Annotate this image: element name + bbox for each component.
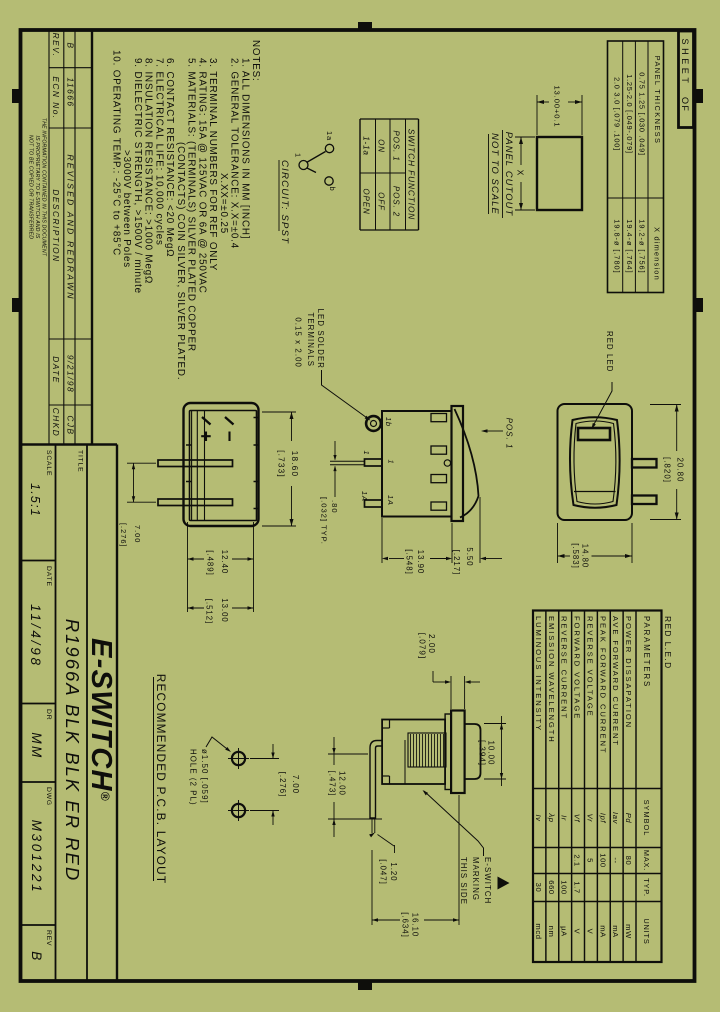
svg-text:2.1: 2.1 [573, 854, 582, 866]
svg-text:mA: mA [611, 925, 620, 938]
svg-text:9. DIELECTRIC STRENGTH, >1500V: 9. DIELECTRIC STRENGTH, >1500V / minute [132, 58, 143, 294]
svg-text:PEAK FORWARD CURRENT: PEAK FORWARD CURRENT [598, 616, 607, 754]
svg-text:mW: mW [624, 924, 633, 939]
svg-text:REV: REV [45, 930, 52, 946]
svg-text:0.15 x 2.00: 0.15 x 2.00 [294, 317, 303, 368]
svg-text:1.25-2.0 [.049-.079]: 1.25-2.0 [.049-.079] [625, 74, 634, 154]
svg-text:FORWARD VOLTAGE: FORWARD VOLTAGE [573, 616, 582, 720]
svg-text:9/21/98: 9/21/98 [66, 355, 76, 393]
svg-text:POS. 2: POS. 2 [392, 186, 401, 217]
svg-text:(CONTACTS) COIN SILVER, SILVER: (CONTACTS) COIN SILVER, SILVER PLATED. [175, 142, 186, 380]
svg-text:OPEN: OPEN [362, 188, 371, 214]
svg-text:[.079]: [.079] [418, 633, 427, 660]
svg-text:1: 1 [387, 460, 396, 465]
svg-text:CJB: CJB [66, 415, 76, 435]
svg-text:PANEL CUTOUT: PANEL CUTOUT [504, 132, 514, 217]
svg-text:µA: µA [560, 926, 569, 937]
svg-text:OFF: OFF [377, 192, 386, 211]
svg-text:18.60: 18.60 [290, 451, 299, 478]
svg-text:MARKING: MARKING [471, 857, 480, 901]
svg-text:NOTES:: NOTES: [250, 40, 261, 82]
svg-text:5. MATERIALS: (TERMINALS) SILV: 5. MATERIALS: (TERMINALS) SILVER PLATED … [186, 58, 197, 352]
svg-text:REV.: REV. [51, 33, 61, 58]
svg-text:1A: 1A [360, 491, 369, 502]
svg-text:11666: 11666 [66, 78, 76, 108]
svg-text:4. RATING: 15A @ 125VAC OR 6A: 4. RATING: 15A @ 125VAC OR 6A @ 250VAC [196, 58, 207, 294]
svg-text:DATE: DATE [45, 566, 52, 587]
svg-text:19.4-ø [.764]: 19.4-ø [.764] [625, 219, 634, 273]
svg-text:30: 30 [534, 883, 543, 893]
svg-text:1-1a: 1-1a [362, 136, 371, 156]
svg-text:NOT TO SCALE: NOT TO SCALE [490, 133, 500, 215]
svg-text:13.00+0.1: 13.00+0.1 [553, 85, 562, 127]
svg-text:B: B [66, 42, 76, 49]
svg-text:ECN No.: ECN No. [51, 76, 61, 119]
svg-text:2.00: 2.00 [427, 634, 436, 654]
svg-text:13.00: 13.00 [220, 598, 229, 623]
svg-text:19.8-ø [.780]: 19.8-ø [.780] [613, 219, 622, 273]
svg-text:Iav: Iav [611, 812, 620, 825]
svg-text:--: -- [611, 857, 620, 863]
svg-text:EMISSION WAVELENGTH: EMISSION WAVELENGTH [547, 616, 556, 744]
svg-text:TITLE: TITLE [77, 450, 84, 473]
svg-text:RED L.E.D: RED L.E.D [663, 616, 673, 670]
svg-text:DR: DR [45, 709, 52, 720]
svg-text:[.820]: [.820] [663, 457, 672, 483]
svg-text:LED SOLDER: LED SOLDER [316, 309, 325, 369]
svg-text:100: 100 [560, 880, 569, 894]
svg-text:B: B [29, 951, 44, 962]
svg-text:1.7: 1.7 [573, 881, 582, 893]
svg-text:R1966A BLK BLK ER RED: R1966A BLK BLK ER RED [62, 619, 83, 882]
svg-text:80: 80 [624, 856, 633, 866]
svg-text:LUMINOUS INTENSITY: LUMINOUS INTENSITY [534, 616, 543, 732]
svg-text:NOT TO BE COPIED OR TRANSFERRE: NOT TO BE COPIED OR TRANSFERRED [28, 135, 34, 239]
svg-text:1. ALL DIMENSIONS IN MM [INCH]: 1. ALL DIMENSIONS IN MM [INCH] [239, 58, 250, 239]
svg-text:12.40: 12.40 [220, 550, 229, 575]
svg-text:[.047]: [.047] [379, 859, 388, 885]
svg-text:.80: .80 [330, 500, 339, 514]
svg-text:[.733]: [.733] [277, 450, 286, 478]
svg-text:TERMINALS: TERMINALS [306, 312, 315, 367]
svg-text:OF: OF [680, 97, 690, 112]
svg-text:Vr: Vr [585, 814, 594, 823]
svg-text:[.276]: [.276] [278, 772, 287, 798]
svg-text:1.5:1: 1.5:1 [28, 483, 42, 517]
svg-text:1A: 1A [386, 495, 395, 506]
svg-text:SYMBOL: SYMBOL [642, 800, 651, 837]
svg-text:[.512]: [.512] [205, 599, 214, 625]
svg-text:[.583]: [.583] [571, 543, 580, 569]
svg-text:THE INFORMATION CONTAINED IN T: THE INFORMATION CONTAINED IN THIS DOCUME… [41, 118, 47, 257]
svg-text:19.2-ø [.756]: 19.2-ø [.756] [638, 219, 647, 273]
svg-text:14.80: 14.80 [581, 544, 590, 569]
svg-text:λp: λp [547, 812, 556, 822]
svg-text:RECOMMENDED P.C.B. LAYOUT: RECOMMENDED P.C.B. LAYOUT [154, 674, 168, 884]
svg-text:3. TERMINAL NUMBERS FOR REF ON: 3. TERMINAL NUMBERS FOR REF ONLY [207, 58, 218, 271]
svg-text:b: b [328, 187, 337, 192]
svg-text:8. INSULATION RESISTANCE: >100: 8. INSULATION RESISTANCE: >1000 MegΩ [143, 58, 154, 284]
svg-text:ø1.50 [.059]: ø1.50 [.059] [200, 749, 209, 804]
svg-text:HOLE (2 PL): HOLE (2 PL) [189, 749, 198, 806]
svg-text:[.276]: [.276] [119, 523, 128, 548]
svg-text:Ipf: Ipf [598, 813, 607, 824]
svg-text:[.217]: [.217] [452, 550, 461, 576]
svg-text:>3000V between Poles: >3000V between Poles [121, 150, 132, 268]
svg-text:PANEL THICKNESS: PANEL THICKNESS [653, 56, 662, 145]
svg-text:7.00: 7.00 [133, 525, 142, 543]
svg-text:MM: MM [29, 732, 44, 759]
svg-text:X dimension: X dimension [653, 227, 662, 281]
svg-text:nm: nm [547, 926, 556, 938]
svg-text:6. CONTACT RESISTANCE: <20 Meg: 6. CONTACT RESISTANCE: <20 MegΩ [164, 58, 175, 257]
svg-text:DESCRIPTION: DESCRIPTION [51, 189, 61, 262]
svg-text:PARAMETERS: PARAMETERS [642, 616, 651, 688]
svg-text:[.473]: [.473] [328, 770, 337, 796]
svg-text:IS PROPRIETARY TO E-SWITCH AND: IS PROPRIETARY TO E-SWITCH AND IS [34, 136, 40, 239]
svg-text:1b: 1b [384, 417, 393, 427]
svg-text:UNITS: UNITS [642, 918, 651, 944]
svg-text:SHEET: SHEET [680, 39, 690, 87]
svg-text:REVISED AND REDRAWN: REVISED AND REDRAWN [66, 154, 76, 300]
svg-text:M301221: M301221 [29, 820, 44, 895]
svg-text:THIS SIDE: THIS SIDE [459, 857, 468, 905]
svg-text:[.394]: [.394] [478, 740, 487, 766]
svg-text:DWG: DWG [45, 787, 52, 806]
svg-text:DATE: DATE [51, 356, 61, 384]
svg-text:POWER DISSAPATION: POWER DISSAPATION [624, 616, 633, 729]
svg-text:Pd: Pd [624, 813, 633, 824]
svg-text:16.10: 16.10 [411, 913, 420, 938]
svg-text:RED LED: RED LED [605, 331, 614, 373]
svg-text:X: X [516, 170, 526, 177]
svg-text:mA: mA [598, 925, 607, 938]
svg-text:CIRCUIT: SPST: CIRCUIT: SPST [279, 160, 290, 244]
svg-text:E-SWITCH: E-SWITCH [483, 857, 492, 904]
svg-text:V: V [573, 929, 582, 935]
svg-text:AVE FORWARD CURRENT: AVE FORWARD CURRENT [611, 616, 620, 747]
svg-text:1: 1 [294, 153, 303, 158]
svg-text:Vf: Vf [573, 814, 582, 823]
svg-text:[.032] TYP.: [.032] TYP. [320, 497, 329, 545]
svg-text:TYP.: TYP. [642, 878, 651, 897]
svg-text:[.634]: [.634] [401, 912, 410, 938]
svg-text:20.80: 20.80 [676, 457, 685, 482]
svg-text:E-SWITCH®: E-SWITCH® [85, 638, 117, 802]
svg-text:X.XX=±0.25: X.XX=±0.25 [218, 173, 229, 234]
svg-text:REVERSE CURRENT: REVERSE CURRENT [560, 616, 569, 720]
svg-text:100: 100 [598, 853, 607, 867]
svg-text:SWITCH FUNCTION: SWITCH FUNCTION [407, 129, 417, 220]
svg-text:1.20: 1.20 [389, 862, 398, 881]
svg-text:1: 1 [362, 451, 371, 456]
svg-text:1a: 1a [325, 131, 334, 141]
svg-text:SCALE: SCALE [45, 450, 52, 476]
svg-text:10. OPERATING TEMP.: -25°C to: 10. OPERATING TEMP.: -25°C to +85°C [110, 50, 121, 256]
svg-text:10.00: 10.00 [487, 740, 496, 765]
svg-text:[.548]: [.548] [405, 549, 414, 575]
svg-text:mcd: mcd [534, 923, 543, 939]
svg-text:0.75 1.25 [.030 .049]: 0.75 1.25 [.030 .049] [638, 72, 647, 156]
svg-text:2.0 3.0 [.079 .100]: 2.0 3.0 [.079 .100] [613, 77, 622, 151]
svg-text:5.50: 5.50 [465, 547, 474, 566]
svg-text:Ir: Ir [560, 815, 569, 821]
svg-text:660: 660 [547, 880, 556, 894]
svg-text:12.00: 12.00 [338, 771, 347, 796]
svg-text:CHKD: CHKD [51, 408, 61, 438]
svg-text:REVERSE VOLTAGE: REVERSE VOLTAGE [585, 616, 594, 718]
svg-text:MAX.: MAX. [642, 850, 651, 871]
svg-text:Iv: Iv [534, 814, 543, 822]
svg-text:5: 5 [585, 858, 594, 863]
svg-text:11/4/98: 11/4/98 [28, 604, 43, 668]
svg-text:7.00: 7.00 [291, 775, 300, 794]
svg-text:7. ELECTRICAL LIFE: 10,000 cyc: 7. ELECTRICAL LIFE: 10,000 cycles [153, 58, 164, 246]
svg-text:13.90: 13.90 [416, 550, 425, 575]
svg-text:POS. 1: POS. 1 [505, 418, 514, 450]
svg-text:[.489]: [.489] [206, 550, 215, 576]
svg-text:V: V [585, 929, 594, 935]
svg-text:ON: ON [377, 139, 386, 153]
svg-text:2. GENERAL TOLERANCE: X.X=±0.4: 2. GENERAL TOLERANCE: X.X=±0.4 [229, 58, 240, 249]
svg-text:POS. 1: POS. 1 [392, 130, 401, 161]
